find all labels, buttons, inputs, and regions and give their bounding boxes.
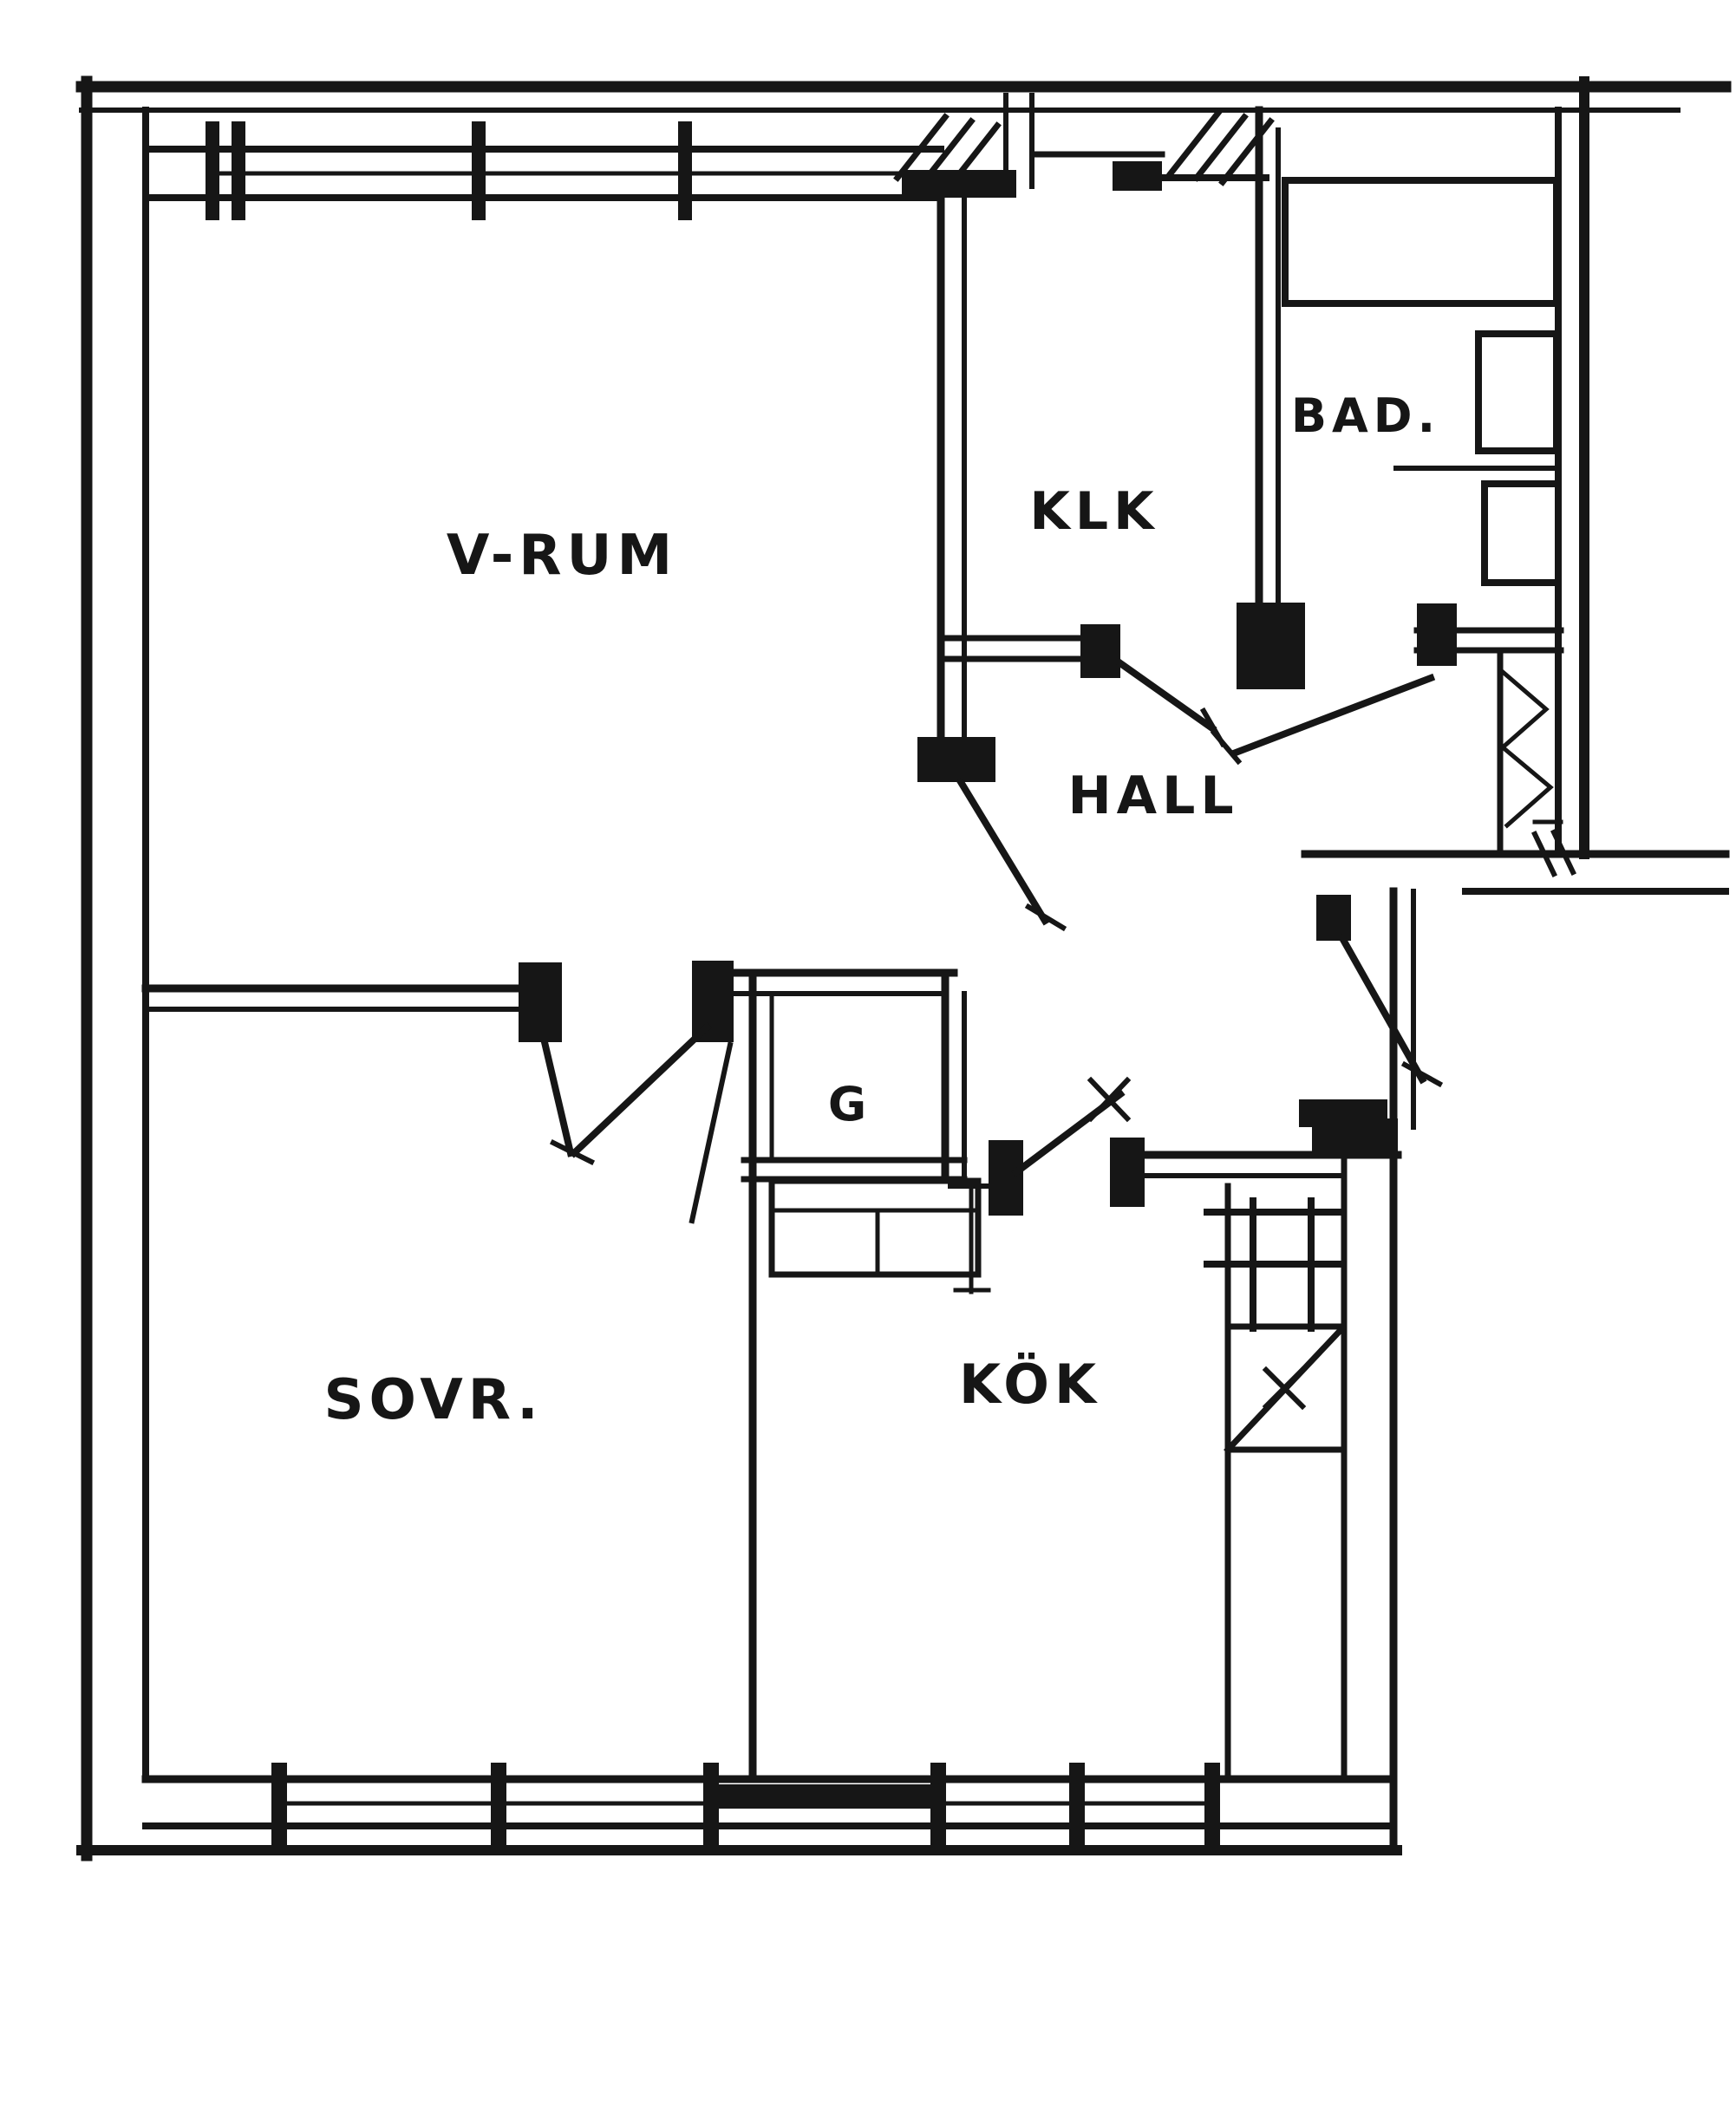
- door-swing-bedroom: [545, 1027, 730, 1221]
- ventilation-shaft: [1500, 650, 1561, 854]
- cabinet-under-wardrobe: [772, 1181, 978, 1275]
- refrigerator-symbol: [1228, 1328, 1342, 1450]
- door-post: [1316, 895, 1351, 941]
- room-label-bathroom: BAD.: [1291, 388, 1440, 443]
- door-post: [917, 737, 995, 782]
- door-post: [989, 1140, 1023, 1216]
- door-post: [1237, 603, 1305, 689]
- door-post: [1080, 624, 1120, 678]
- door-swing-living-room: [961, 782, 1063, 928]
- door-post: [1417, 603, 1457, 666]
- room-label-living-room: V-RUM: [447, 524, 677, 588]
- wall-pier-between-windows: [716, 1784, 933, 1809]
- door-swing-bathroom: [1214, 678, 1431, 761]
- floor-plan-drawing: V-RUM KLK BAD. HALL G SOVR. KÖK: [0, 0, 1736, 2106]
- entry-door: [1299, 895, 1439, 1127]
- toilet: [1485, 484, 1558, 583]
- room-label-closet: KLK: [1029, 481, 1158, 542]
- room-label-wardrobe: G: [828, 1077, 871, 1131]
- kitchen-counter: [1228, 1186, 1344, 1779]
- partition-bedroom: [146, 961, 734, 1042]
- door-post: [519, 962, 562, 1042]
- door-post: [692, 961, 734, 1042]
- sink: [1478, 334, 1557, 451]
- room-label-kitchen: KÖK: [959, 1353, 1101, 1416]
- room-label-hall: HALL: [1067, 766, 1238, 826]
- bathtub: [1285, 180, 1557, 303]
- floor-plan-page: V-RUM KLK BAD. HALL G SOVR. KÖK: [0, 0, 1736, 2106]
- corner-post: [1312, 1118, 1398, 1157]
- door-post: [1110, 1138, 1145, 1207]
- door-swing-closet: [1120, 663, 1223, 744]
- room-label-bedroom: SOVR.: [323, 1368, 543, 1432]
- window-top-living-room: [146, 128, 941, 213]
